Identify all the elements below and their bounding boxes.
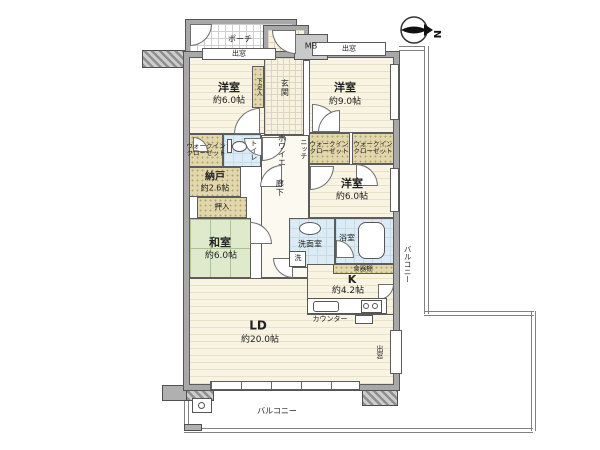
bay-window-label: 出窓 — [232, 51, 246, 58]
compass-north-icon: N — [392, 8, 446, 52]
balcony-label-bottom: バルコニー — [257, 408, 297, 417]
balcony-rail-right-lower — [531, 311, 536, 431]
wic-line2: クローゼット — [354, 147, 393, 155]
storage-room-name: 納戸 — [205, 172, 225, 183]
washing-machine-label: 洗 — [295, 255, 302, 263]
stove-burner-icon — [372, 303, 378, 309]
balcony-rail-bottom — [184, 428, 533, 433]
window-right-upper — [390, 64, 399, 120]
washbasin-icon — [299, 222, 321, 235]
walk-in-closet-label: ウォークイン クローゼット — [187, 143, 226, 157]
cupboard-label: 食器棚 — [353, 266, 373, 273]
toilet-label: トイレ — [249, 140, 257, 161]
niche-label: ニッチ — [299, 139, 307, 160]
bay-window-label: 出窓 — [342, 46, 356, 53]
balcony-label-right: バルコニー — [403, 245, 411, 283]
bathtub-icon — [358, 222, 385, 259]
western-top-right-name: 洋室 — [334, 82, 356, 94]
western-top-right-size: 約9.0帖 — [329, 98, 361, 108]
living-dining-name: LD — [249, 319, 267, 332]
kitchen-name: K — [348, 274, 357, 286]
wing-wall-bottom-right — [362, 388, 398, 406]
kitchen-sink-icon — [313, 301, 339, 312]
western-top-left-size: 約6.0帖 — [213, 97, 245, 107]
bathroom-label: 浴室 — [339, 235, 355, 244]
toilet-bowl-icon — [232, 141, 247, 152]
japanese-room-name: 和室 — [209, 237, 231, 249]
wic-line2: クローゼット — [187, 149, 226, 157]
entrance-label: 玄関 — [280, 79, 289, 97]
bay-window-ld-right — [390, 330, 402, 374]
svg-text:N: N — [431, 30, 442, 38]
hallway-label: 廊下 — [275, 179, 284, 197]
balcony-corner-post — [184, 424, 202, 431]
shoe-cabinet-label: 下足入 — [255, 78, 262, 96]
floor-plan: N ポーチ 出窓 MB 出窓 玄関 下足入 洋室 約6.0帖 ウォークイン クロ… — [0, 0, 600, 450]
counter-label: カウンター — [313, 316, 348, 324]
japanese-room-size: 約6.0帖 — [205, 252, 237, 262]
porch-label: ポーチ — [228, 36, 252, 45]
bay-window-label: 出窓 — [375, 345, 383, 359]
counter-side-box — [355, 315, 373, 324]
walk-in-closet-label: ウォークイン クローゼット — [310, 141, 349, 155]
storage-room-size: 約2.6帖 — [201, 185, 230, 194]
walk-in-closet-label: ウォークイン クローゼット — [354, 141, 393, 155]
balcony-rail-right — [424, 46, 429, 314]
kitchen-size: 約4.2帖 — [332, 287, 364, 297]
stove-burner-icon — [363, 303, 369, 309]
foyer-label: ホワイエ — [277, 134, 286, 166]
balcony-rail-step — [424, 311, 534, 316]
balcony-faucet-icon — [198, 402, 205, 409]
futon-closet-label: 押入 — [215, 203, 230, 211]
living-dining-size: 約20.0帖 — [241, 336, 279, 346]
washroom-label: 洗面室 — [298, 241, 322, 250]
meter-box-label: MB — [305, 43, 317, 52]
wic-line2: クローゼット — [310, 147, 349, 155]
window-ld-balcony — [210, 381, 360, 390]
western-mid-right-name: 洋室 — [341, 178, 363, 190]
western-top-left-name: 洋室 — [218, 82, 240, 94]
western-mid-right-size: 約6.0帖 — [336, 193, 368, 203]
window-right-mid — [390, 168, 399, 212]
wing-wall-top-left — [142, 50, 186, 68]
